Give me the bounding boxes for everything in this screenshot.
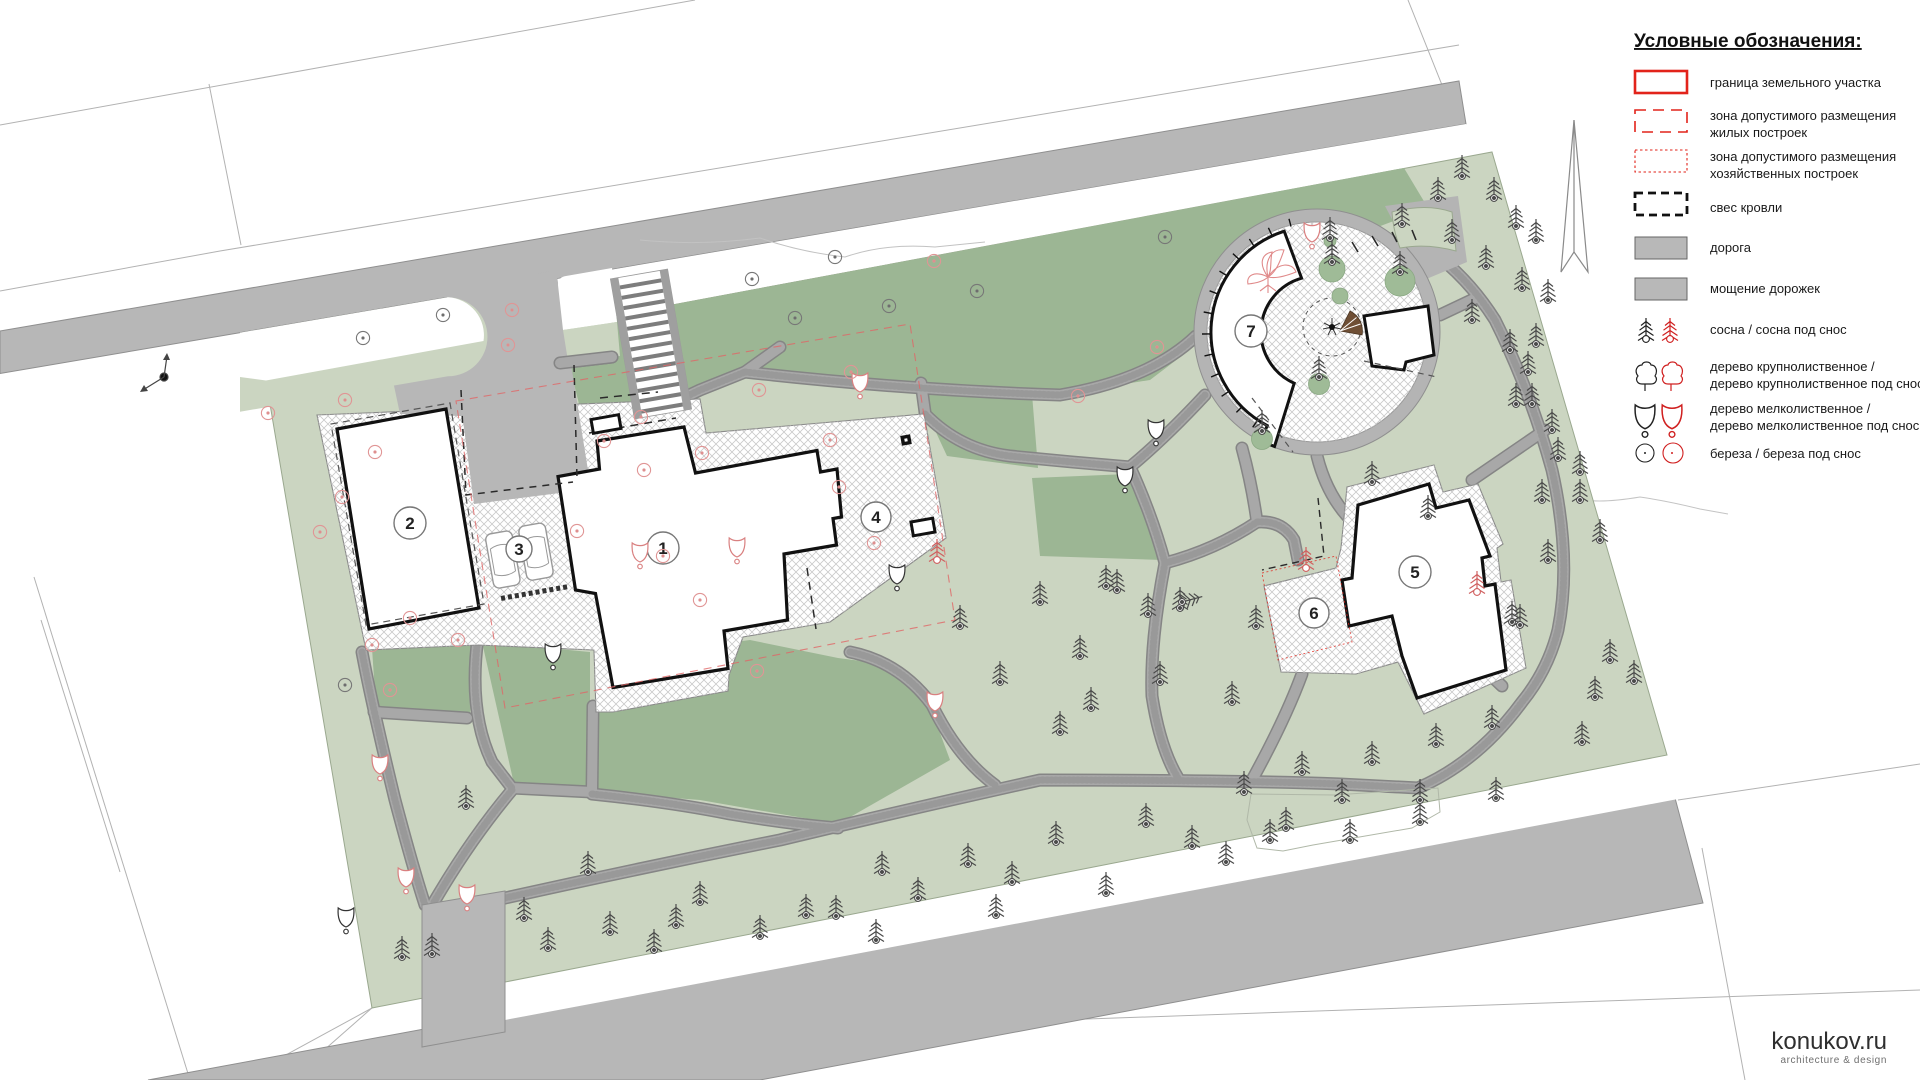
svg-text:дерево крупнолиственное под сн: дерево крупнолиственное под снос (1710, 376, 1920, 391)
svg-text:konukov.ru: konukov.ru (1771, 1028, 1887, 1055)
svg-text:5: 5 (1410, 563, 1419, 582)
svg-text:дерево мелколиственное под сно: дерево мелколиственное под снос (1710, 418, 1920, 433)
svg-text:зона допустимого размещения: зона допустимого размещения (1710, 108, 1896, 123)
svg-text:дерево мелколиственное /: дерево мелколиственное / (1710, 401, 1871, 416)
svg-text:хозяйственных построек: хозяйственных построек (1710, 166, 1858, 181)
svg-text:мощение дорожек: мощение дорожек (1710, 281, 1820, 296)
svg-text:architecture & design: architecture & design (1780, 1055, 1887, 1066)
svg-text:береза / береза под снос: береза / береза под снос (1710, 446, 1861, 461)
svg-text:Условные обозначения:: Условные обозначения: (1634, 31, 1862, 52)
svg-text:дорога: дорога (1710, 240, 1752, 255)
svg-text:7: 7 (1246, 322, 1255, 341)
svg-text:сосна / сосна под снос: сосна / сосна под снос (1710, 322, 1847, 337)
svg-text:дерево крупнолиственное /: дерево крупнолиственное / (1710, 359, 1875, 374)
svg-text:свес кровли: свес кровли (1710, 200, 1782, 215)
svg-text:2: 2 (405, 514, 414, 533)
svg-text:зона допустимого размещения: зона допустимого размещения (1710, 149, 1896, 164)
svg-text:6: 6 (1309, 604, 1318, 623)
svg-text:жилых построек: жилых построек (1710, 125, 1807, 140)
svg-text:4: 4 (871, 508, 881, 527)
svg-text:3: 3 (514, 540, 523, 559)
svg-text:граница земельного участка: граница земельного участка (1710, 75, 1882, 90)
